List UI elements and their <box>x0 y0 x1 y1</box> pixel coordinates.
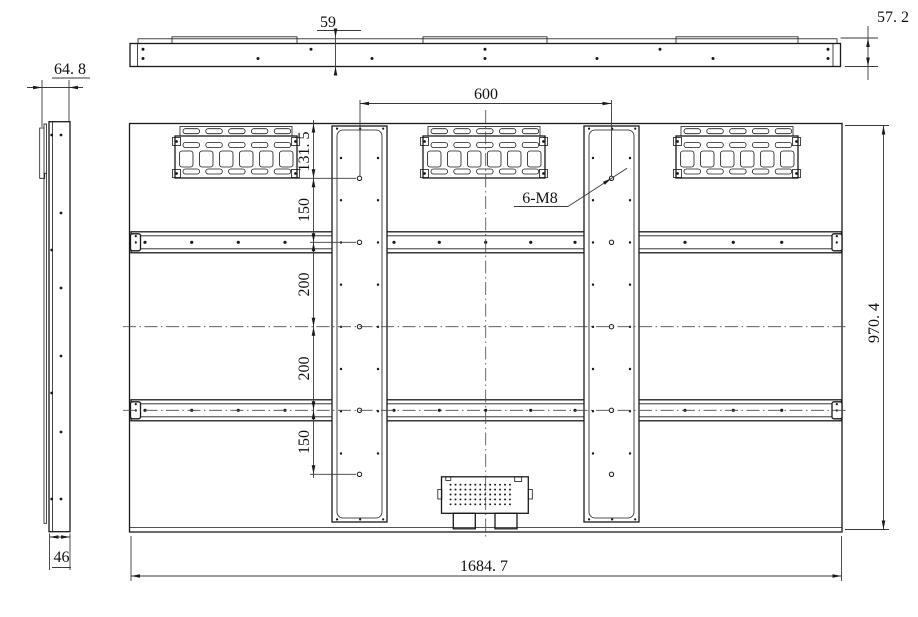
vent-grille-right <box>674 127 801 179</box>
side-view-front-bezel <box>44 124 47 523</box>
top-bracket-plate-center <box>423 37 547 44</box>
dim-label-57-2: 57. 2 <box>877 9 909 26</box>
top-bracket-plate-right <box>676 37 798 44</box>
vesa-rail-right <box>584 126 639 522</box>
top-view-body <box>130 44 841 67</box>
connector-foot-left <box>453 513 475 529</box>
dim-top-view-thickness: 57. 2 <box>841 9 910 80</box>
top-view <box>130 37 841 67</box>
dim-label-200-upper: 200 <box>296 273 313 297</box>
crossbar-screw-holes <box>143 241 783 412</box>
dim-label-59: 59 <box>320 14 336 31</box>
engineering-drawing: 59 57. 2 64. 8 46 600 <box>0 0 918 617</box>
vesa-rail-left <box>332 126 387 522</box>
dim-label-150-upper: 150 <box>296 198 313 222</box>
dim-side-view-depth: 64. 8 <box>27 61 90 127</box>
vent-grille-center <box>421 127 548 179</box>
top-view-screw-holes <box>142 48 830 60</box>
dim-label-1684-7: 1684. 7 <box>460 558 508 575</box>
side-view <box>40 122 70 532</box>
top-bracket-plate-left <box>172 37 297 44</box>
dim-label-600: 600 <box>474 86 498 103</box>
rear-view <box>123 110 848 540</box>
dim-label-150-lower: 150 <box>296 430 313 454</box>
dim-side-view-width: 46 <box>50 534 72 571</box>
connector-foot-right <box>495 513 517 529</box>
callout-label-6-m8: 6-M8 <box>522 190 558 207</box>
side-view-mount-ear <box>40 128 47 178</box>
dim-label-64-8: 64. 8 <box>54 61 86 78</box>
drawing-canvas: 59 57. 2 64. 8 46 600 <box>0 0 918 617</box>
dim-label-131-5: 131. 5 <box>296 132 313 172</box>
io-connector <box>438 477 533 529</box>
dim-panel-width: 1684. 7 <box>131 536 842 581</box>
dim-label-200-lower: 200 <box>296 357 313 381</box>
vent-grille-left <box>173 127 300 179</box>
top-cover-lip <box>138 39 837 44</box>
dim-label-970-4: 970. 4 <box>866 303 883 343</box>
dim-panel-height: 970. 4 <box>845 126 889 530</box>
dim-label-46: 46 <box>54 549 70 566</box>
